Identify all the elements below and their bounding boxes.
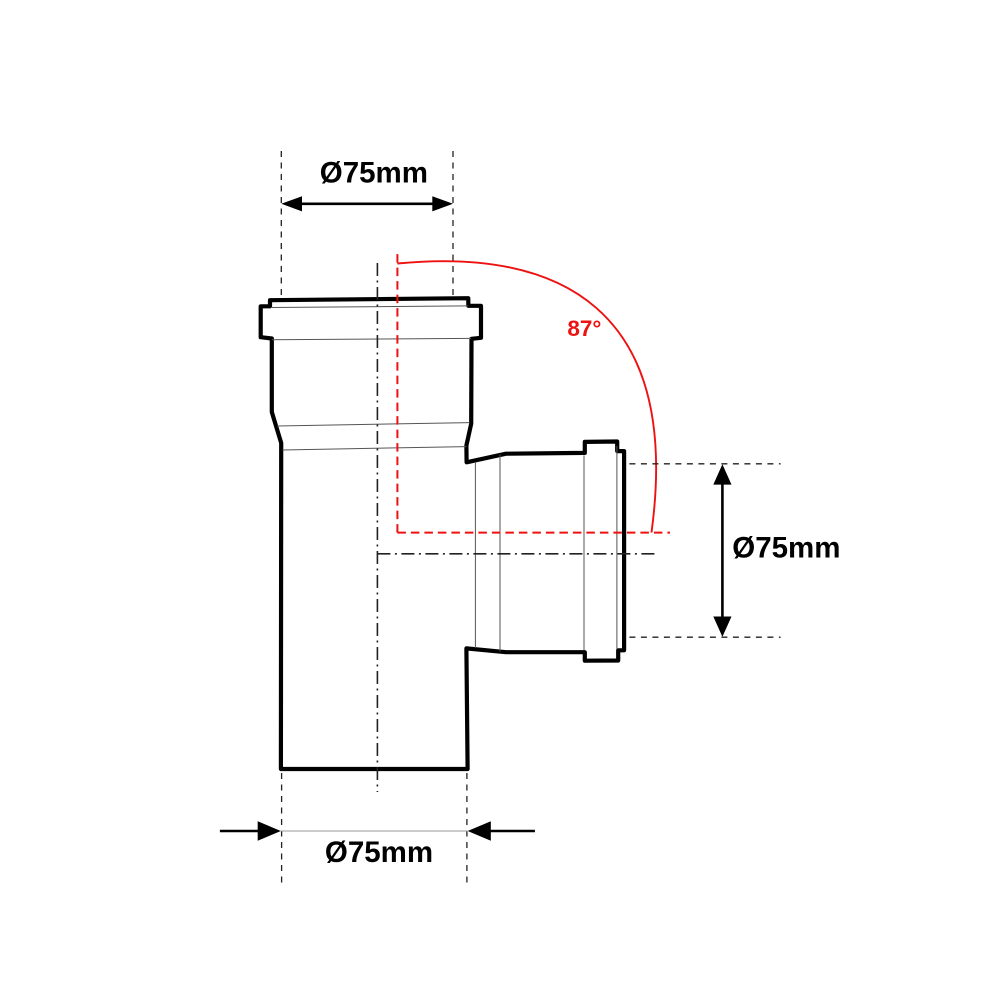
svg-text:87°: 87°: [567, 316, 601, 341]
svg-text:Ø75mm: Ø75mm: [732, 532, 840, 565]
svg-text:Ø75mm: Ø75mm: [325, 836, 433, 869]
svg-text:Ø75mm: Ø75mm: [320, 156, 428, 189]
